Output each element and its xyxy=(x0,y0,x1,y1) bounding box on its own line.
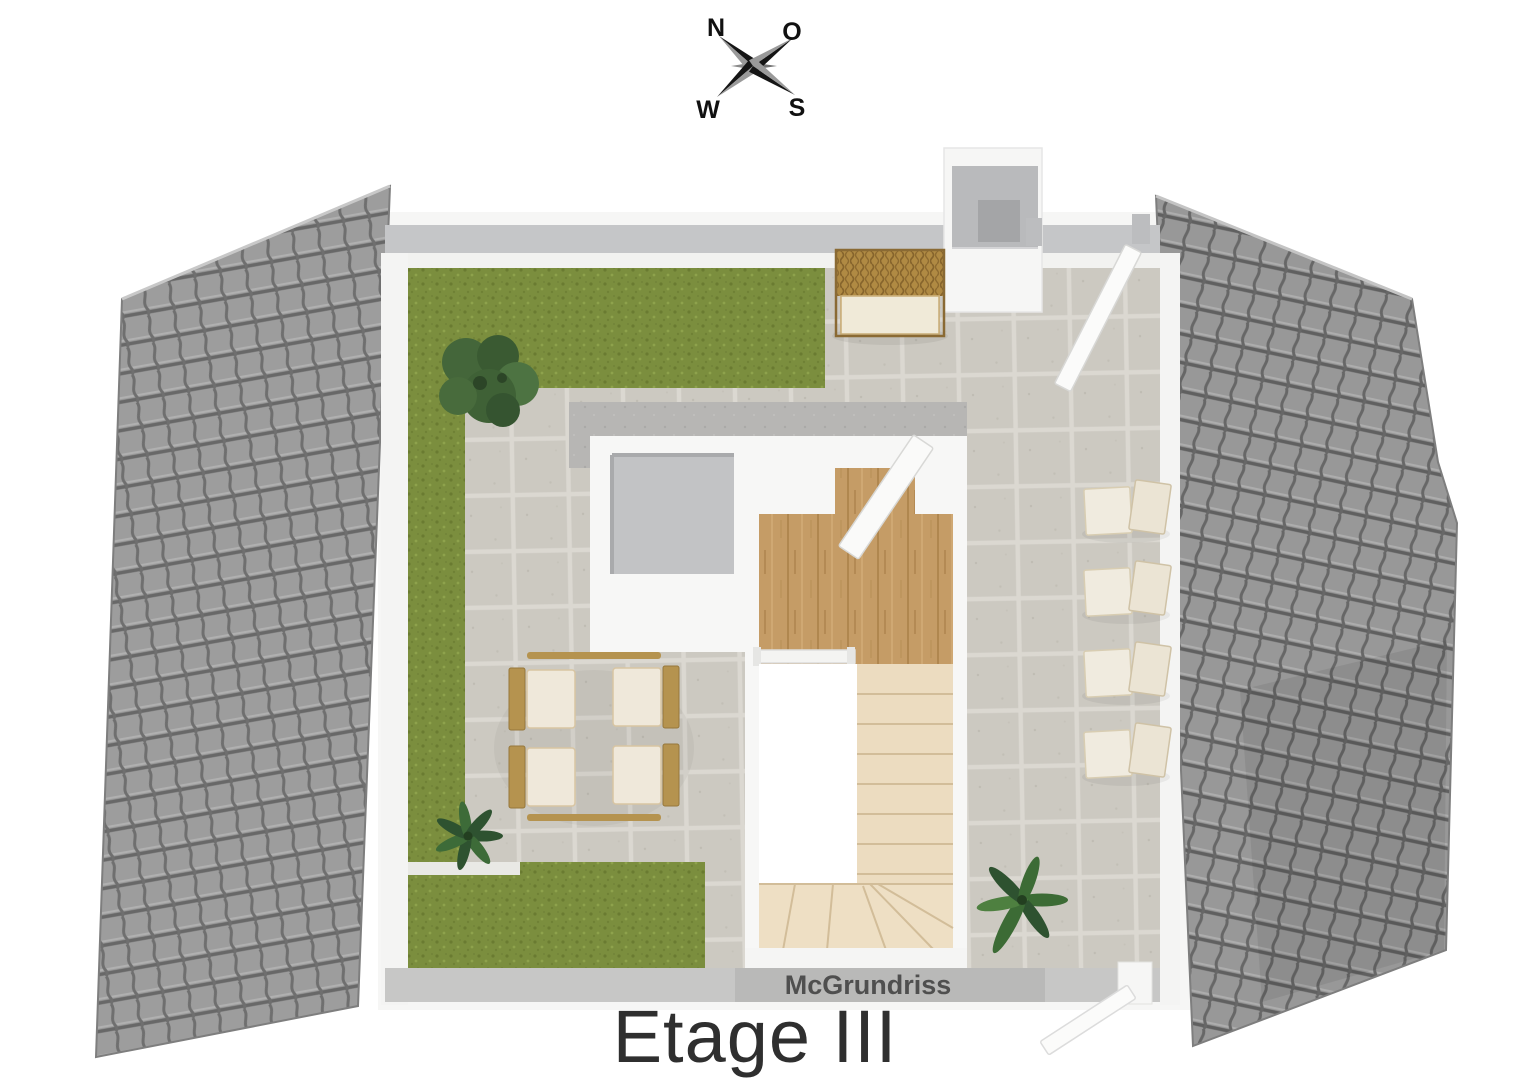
roof-left xyxy=(96,186,390,1057)
floor-plan-scene: N O W S xyxy=(0,0,1536,1079)
armchair xyxy=(613,744,679,806)
compass-east-label: O xyxy=(782,18,801,46)
terrace xyxy=(381,148,1180,1055)
right-wall xyxy=(1160,253,1180,1005)
wall-cap-left xyxy=(1026,218,1042,246)
compass-west-label: W xyxy=(696,96,720,124)
left-wall xyxy=(381,253,408,1005)
parapet-top-wall xyxy=(385,225,1160,253)
armchair xyxy=(509,746,575,808)
compass-south-label: S xyxy=(789,94,806,122)
seating-group xyxy=(494,652,694,826)
floor-plan-page: N O W S xyxy=(0,0,1536,1079)
armchair xyxy=(613,666,679,728)
armchair xyxy=(509,668,575,730)
roof-right xyxy=(1156,196,1457,1046)
sun-lounger xyxy=(1082,723,1171,786)
rooftop-structure xyxy=(590,436,748,652)
floor-title: Etage III xyxy=(613,995,898,1078)
stairwell-void xyxy=(759,664,857,884)
stair-railing xyxy=(753,647,855,666)
compass-north-label: N xyxy=(707,14,725,42)
wicker-bench xyxy=(832,250,948,345)
sun-lounger xyxy=(1082,561,1171,624)
sun-lounger xyxy=(1082,480,1171,543)
stair-room xyxy=(745,435,967,985)
wall-cap-right xyxy=(1132,214,1150,244)
sun-lounger xyxy=(1082,642,1171,705)
